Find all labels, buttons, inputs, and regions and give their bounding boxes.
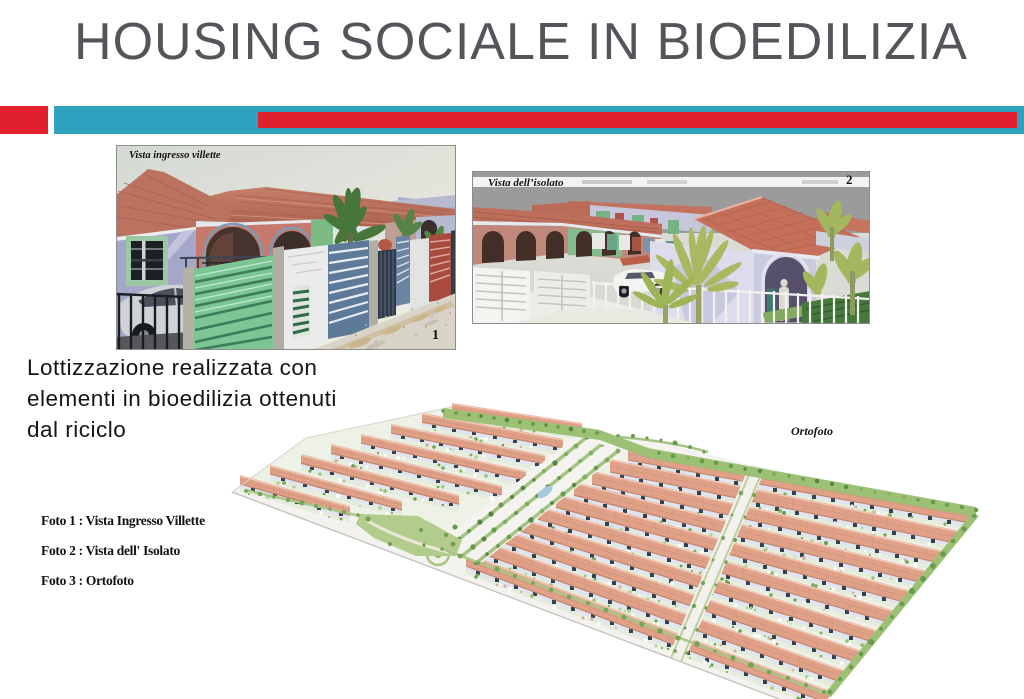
svg-text:Vista ingresso villette: Vista ingresso villette [129, 150, 221, 161]
svg-text:1: 1 [432, 328, 439, 343]
svg-text:2: 2 [846, 172, 853, 187]
svg-text:Vista dell’isolato: Vista dell’isolato [488, 177, 564, 189]
